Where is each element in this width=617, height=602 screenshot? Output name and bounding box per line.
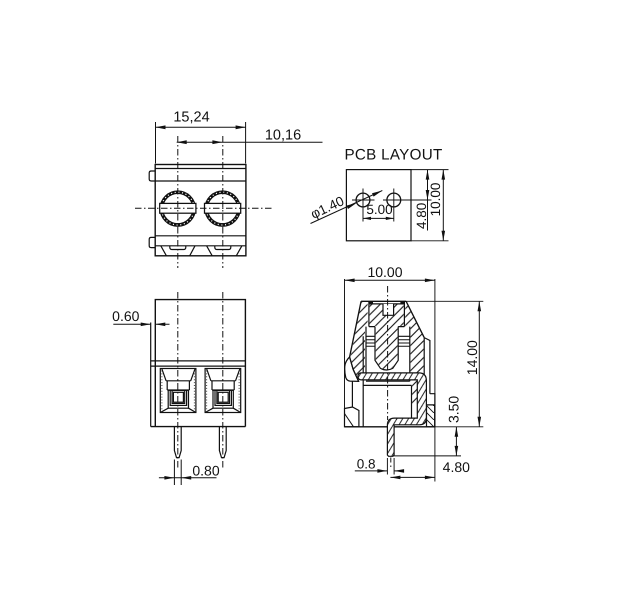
svg-text:5.00: 5.00 — [366, 202, 392, 217]
svg-text:15,24: 15,24 — [173, 110, 209, 126]
svg-text:0.80: 0.80 — [192, 463, 219, 479]
svg-text:4.80: 4.80 — [443, 459, 470, 475]
svg-text:10.00: 10.00 — [367, 264, 402, 280]
svg-text:3.50: 3.50 — [445, 396, 461, 423]
svg-text:10.00: 10.00 — [428, 183, 443, 217]
svg-text:4.80: 4.80 — [414, 203, 429, 229]
svg-text:0.8: 0.8 — [357, 456, 376, 471]
svg-text:14.00: 14.00 — [464, 340, 480, 375]
svg-text:10,16: 10,16 — [265, 128, 301, 144]
svg-text:PCB LAYOUT: PCB LAYOUT — [344, 147, 442, 164]
svg-text:0.60: 0.60 — [112, 308, 139, 324]
